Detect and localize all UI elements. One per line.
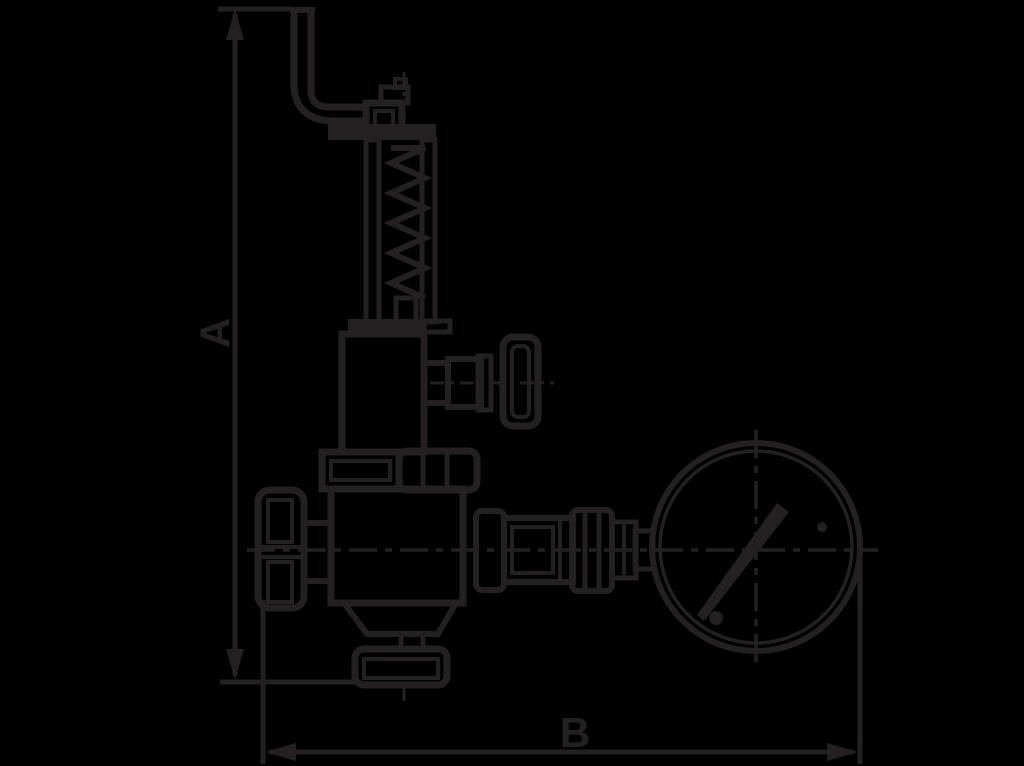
outlet-cone: [344, 603, 456, 649]
handwheel-hub-band: [258, 547, 304, 557]
gauge-needle: [697, 503, 789, 621]
bonnet: [342, 319, 450, 452]
pressure-gauge: [652, 430, 860, 664]
lever-pin: [395, 79, 406, 88]
wheel-shaft: [304, 523, 331, 581]
gauge-screw-left: [709, 611, 723, 625]
yoke-rail-left: [366, 140, 379, 322]
arrow-right-icon: [827, 743, 858, 761]
union-nut-window: [331, 461, 390, 480]
flange-inner: [364, 659, 438, 678]
label-b: B: [560, 709, 590, 756]
handwheel-window-top: [268, 500, 292, 542]
technical-drawing: A B: [0, 0, 1024, 766]
cone: [344, 603, 456, 634]
lever-inner-wall: [311, 10, 366, 107]
spring-column: [328, 124, 436, 332]
arrow-left-icon: [265, 743, 296, 761]
union-nut: [322, 451, 477, 490]
label-a: A: [192, 318, 239, 348]
arrow-up-icon: [226, 9, 244, 40]
union-nut-right: [399, 451, 477, 490]
union-nut-left: [322, 452, 399, 489]
arrow-down-icon: [226, 649, 244, 680]
bonnet-nub: [424, 321, 450, 332]
union-nut-flats: [423, 454, 447, 487]
handwheel-window-bottom: [268, 562, 292, 602]
plug-ring: [478, 356, 491, 410]
test-lever: [290, 10, 408, 135]
valve-body: [304, 489, 463, 603]
bonnet-body: [342, 334, 424, 452]
handwheel: [258, 490, 304, 608]
body-block: [331, 489, 463, 603]
bottom-flange: [355, 649, 447, 685]
gauge-screw-right: [817, 522, 827, 532]
